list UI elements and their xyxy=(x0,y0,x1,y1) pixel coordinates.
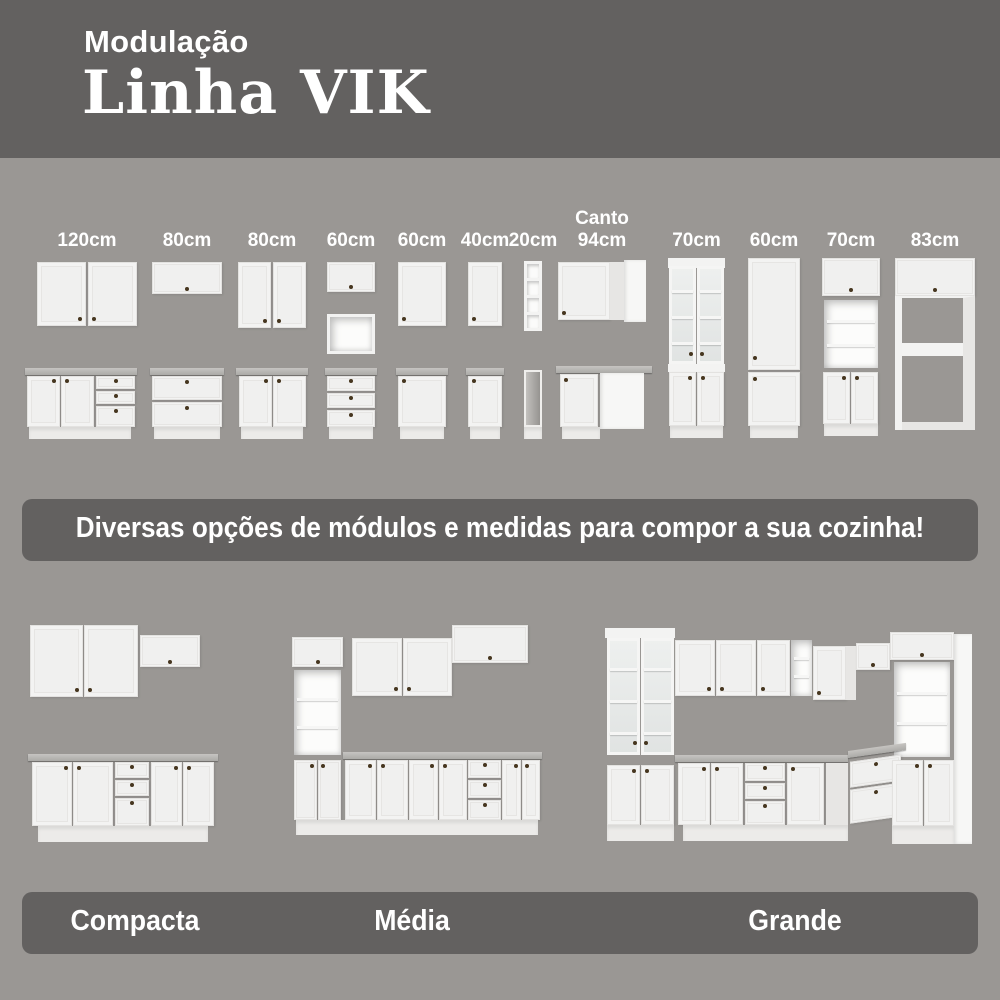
knob xyxy=(483,763,487,767)
cabinet-panel xyxy=(846,646,856,700)
shelf-line xyxy=(644,700,671,703)
cabinet-graphic xyxy=(524,252,542,452)
cabinet-door xyxy=(452,625,528,663)
knob xyxy=(842,376,846,380)
cabinet-graphic xyxy=(238,252,306,452)
cabinet-door xyxy=(398,376,446,427)
cabinet-door xyxy=(32,762,72,826)
knob xyxy=(644,741,648,745)
knob xyxy=(65,379,69,383)
cabinet-door xyxy=(607,765,640,825)
shelf-line xyxy=(644,732,671,735)
cabinet-door xyxy=(61,376,94,427)
knob xyxy=(707,687,711,691)
knob xyxy=(430,764,434,768)
knob xyxy=(525,764,529,768)
countertop xyxy=(466,368,504,375)
cabinet-door xyxy=(468,800,501,820)
shelf-cell xyxy=(527,281,539,295)
glass-door xyxy=(697,266,724,364)
cabinet-door xyxy=(895,258,975,296)
cabinet-panel xyxy=(826,763,848,825)
cabinet-door xyxy=(239,376,272,427)
knob xyxy=(88,688,92,692)
cabinet-door xyxy=(294,760,317,820)
knob xyxy=(168,660,172,664)
shelf-line xyxy=(610,732,637,735)
cabinet-panel xyxy=(668,364,725,372)
cabinet-door xyxy=(377,760,408,820)
knob xyxy=(114,394,118,398)
knob xyxy=(264,379,268,383)
cabinet-door xyxy=(96,406,135,427)
legend-media: Média xyxy=(374,905,450,938)
plinth xyxy=(241,427,303,439)
knob xyxy=(472,379,476,383)
knob xyxy=(514,764,518,768)
cabinet-graphic xyxy=(558,252,646,452)
shelf-line xyxy=(297,698,338,701)
cabinet-door xyxy=(502,760,521,820)
countertop xyxy=(325,368,377,375)
kitchen-grande xyxy=(598,598,978,860)
cabinet-panel xyxy=(902,343,963,356)
cabinet-door xyxy=(84,625,138,697)
knob xyxy=(64,766,68,770)
knob xyxy=(52,379,56,383)
countertop xyxy=(28,754,218,761)
glass-door xyxy=(607,638,640,755)
cabinet-door xyxy=(73,762,113,826)
knob xyxy=(645,769,649,773)
knob xyxy=(928,764,932,768)
cabinet-door xyxy=(152,376,222,400)
knob xyxy=(381,764,385,768)
knob xyxy=(753,377,757,381)
cabinet-door xyxy=(96,391,135,404)
knob xyxy=(310,764,314,768)
page-title: Linha VIK xyxy=(82,58,430,128)
cabinet-door xyxy=(409,760,438,820)
knob xyxy=(702,767,706,771)
knob xyxy=(277,379,281,383)
cabinet-door xyxy=(748,258,800,370)
module-size-label: 83cm xyxy=(861,210,1000,252)
countertop xyxy=(236,368,308,375)
legend-compacta: Compacta xyxy=(71,905,200,938)
cabinet-door xyxy=(468,376,502,427)
knob xyxy=(349,285,353,289)
cabinet-graphic xyxy=(152,252,222,452)
knob xyxy=(472,317,476,321)
knob xyxy=(933,288,937,292)
shelf-line xyxy=(827,320,875,323)
knob xyxy=(753,356,757,360)
shelf-line xyxy=(297,726,338,729)
shelf-line xyxy=(672,316,693,319)
knob xyxy=(277,319,281,323)
knob xyxy=(402,317,406,321)
header-band: Modulação Linha VIK xyxy=(0,0,1000,158)
cabinet-door xyxy=(745,801,785,825)
cabinet-panel xyxy=(524,261,542,331)
knob xyxy=(871,663,875,667)
cabinet-door xyxy=(711,763,743,825)
cabinet-door xyxy=(151,762,182,826)
open-shelf xyxy=(294,670,341,755)
knob xyxy=(763,786,767,790)
knob xyxy=(761,687,765,691)
knob xyxy=(763,804,767,808)
knob xyxy=(368,764,372,768)
knob xyxy=(874,762,878,767)
cabinet-door xyxy=(813,646,846,700)
plinth xyxy=(400,427,444,439)
cabinet-door xyxy=(716,640,756,696)
shelf-line xyxy=(827,344,875,347)
open-niche xyxy=(524,370,542,427)
knob xyxy=(443,764,447,768)
plinth xyxy=(562,427,600,439)
countertop xyxy=(343,752,542,759)
knob xyxy=(701,376,705,380)
shelf-line xyxy=(897,722,947,725)
knob xyxy=(483,803,487,807)
shelf-cell xyxy=(527,315,539,328)
countertop xyxy=(25,368,137,375)
cabinet-door xyxy=(327,262,375,292)
knob xyxy=(263,319,267,323)
shelf-cell xyxy=(527,298,539,312)
cabinet-door xyxy=(558,262,610,320)
cabinet-door xyxy=(183,762,214,826)
shelf-line xyxy=(794,675,809,678)
cabinet-door xyxy=(152,262,222,294)
shelf-line xyxy=(610,700,637,703)
knob xyxy=(763,766,767,770)
cabinet-door xyxy=(669,372,696,426)
kitchen-media xyxy=(290,600,552,855)
knob xyxy=(562,311,566,315)
cabinet-door xyxy=(115,798,149,826)
cabinet-door xyxy=(522,760,540,820)
knob xyxy=(185,380,189,384)
countertop xyxy=(150,368,224,375)
knob xyxy=(114,409,118,413)
plinth xyxy=(824,424,878,436)
knob xyxy=(633,741,637,745)
knob xyxy=(874,790,878,795)
glass-door xyxy=(641,638,674,755)
cabinet-door xyxy=(345,760,376,820)
cabinet-graphic xyxy=(398,252,446,452)
knob xyxy=(688,376,692,380)
knob xyxy=(75,688,79,692)
cabinet-door xyxy=(439,760,467,820)
knob xyxy=(394,687,398,691)
knob xyxy=(817,691,821,695)
knob xyxy=(187,766,191,770)
knob xyxy=(488,656,492,660)
shelf-line xyxy=(794,657,809,660)
knob xyxy=(185,287,189,291)
legend-band: Compacta Média Grande xyxy=(22,892,978,954)
knob xyxy=(564,378,568,382)
cabinet-door xyxy=(273,376,306,427)
cabinet-door xyxy=(748,372,800,426)
shelf-line xyxy=(700,290,721,293)
cabinet-door xyxy=(327,376,375,391)
plinth xyxy=(329,427,373,439)
cabinet-door xyxy=(30,625,83,697)
plinth xyxy=(296,820,538,835)
cabinet-door xyxy=(468,760,501,778)
plinth xyxy=(607,825,674,841)
plinth xyxy=(892,826,954,844)
cabinet-door xyxy=(140,635,200,667)
knob xyxy=(920,653,924,657)
knob xyxy=(349,396,353,400)
plinth xyxy=(750,426,798,438)
cabinet-door xyxy=(327,410,375,427)
knob xyxy=(77,766,81,770)
cabinet-door xyxy=(890,632,954,660)
knob xyxy=(78,317,82,321)
cabinet-door xyxy=(822,258,880,296)
knob xyxy=(114,379,118,383)
shelf-line xyxy=(610,668,637,671)
cabinet-door xyxy=(678,763,710,825)
glass-door xyxy=(669,266,696,364)
cabinet-door xyxy=(892,760,923,826)
cabinet-panel xyxy=(624,260,646,322)
cabinet-graphic xyxy=(468,252,502,452)
shelf-line xyxy=(644,668,671,671)
countertop xyxy=(675,755,848,762)
cabinet-door xyxy=(115,780,149,796)
kitchen-compacta xyxy=(28,600,223,855)
cabinet-door xyxy=(37,262,86,326)
countertop xyxy=(556,366,652,373)
plinth xyxy=(38,826,208,842)
knob xyxy=(174,766,178,770)
shelf-line xyxy=(700,342,721,345)
cabinet-door xyxy=(327,393,375,408)
open-shelf xyxy=(791,640,812,696)
knob xyxy=(92,317,96,321)
cabinet-graphic xyxy=(822,252,880,452)
plinth xyxy=(683,825,848,841)
cabinet-door xyxy=(238,262,271,328)
knob xyxy=(407,687,411,691)
cabinet-door xyxy=(856,643,890,670)
cabinet-door xyxy=(641,765,674,825)
cabinet-door xyxy=(468,780,501,798)
cabinet-door xyxy=(318,760,341,820)
knob xyxy=(700,352,704,356)
knob xyxy=(791,767,795,771)
knob xyxy=(185,406,189,410)
shelf-line xyxy=(700,316,721,319)
knob xyxy=(849,288,853,292)
knob xyxy=(349,379,353,383)
header-eyebrow: Modulação xyxy=(84,24,249,60)
cabinet-panel xyxy=(610,262,624,320)
cabinet-door xyxy=(352,638,402,696)
cabinet-door xyxy=(851,372,878,424)
cabinet-door xyxy=(403,638,452,696)
cabinet-graphic xyxy=(748,252,800,452)
knob xyxy=(632,769,636,773)
cabinet-door xyxy=(292,637,343,667)
cabinet-door xyxy=(27,376,60,427)
countertop xyxy=(396,368,448,375)
knob xyxy=(855,376,859,380)
knob xyxy=(316,660,320,664)
cabinet-panel xyxy=(954,634,972,844)
knob xyxy=(715,767,719,771)
shelf-line xyxy=(897,692,947,695)
legend-grande: Grande xyxy=(748,905,841,938)
knob xyxy=(321,764,325,768)
banner-text: Diversas opções de módulos e medidas par… xyxy=(70,512,930,545)
knob xyxy=(130,765,134,769)
cabinet-door xyxy=(787,763,824,825)
cabinet-graphic xyxy=(37,252,137,452)
cabinet-graphic xyxy=(668,252,725,452)
plinth xyxy=(29,427,131,439)
plinth xyxy=(524,427,542,439)
knob xyxy=(402,379,406,383)
cabinet-door xyxy=(675,640,715,696)
knob xyxy=(130,783,134,787)
open-shelf xyxy=(824,300,878,368)
knob xyxy=(689,352,693,356)
knob xyxy=(349,413,353,417)
cabinet-door xyxy=(398,262,446,326)
banner: Diversas opções de módulos e medidas par… xyxy=(22,499,978,561)
cabinet-panel xyxy=(902,422,963,430)
cabinet-door xyxy=(115,762,149,778)
cabinet-door xyxy=(468,262,502,326)
cabinet-graphic xyxy=(327,252,375,452)
open-shelf xyxy=(327,314,375,354)
cabinet-door xyxy=(745,763,785,781)
cabinet-door xyxy=(697,372,724,426)
knob xyxy=(915,764,919,768)
open-tower-frame xyxy=(895,296,975,430)
plinth xyxy=(470,427,500,439)
shelf-line xyxy=(672,342,693,345)
knob xyxy=(720,687,724,691)
cabinet-door xyxy=(745,783,785,799)
cabinet-door xyxy=(152,402,222,427)
knob xyxy=(483,783,487,787)
cabinet-panel xyxy=(605,628,675,638)
knob xyxy=(130,801,134,805)
cabinet-door xyxy=(96,376,135,389)
plinth xyxy=(154,427,220,439)
cabinet-panel xyxy=(600,373,644,429)
cabinet-door xyxy=(560,374,598,427)
cabinet-door xyxy=(924,760,954,826)
plinth xyxy=(670,426,723,438)
shelf-line xyxy=(672,290,693,293)
cabinet-graphic xyxy=(895,252,975,452)
cabinet-door xyxy=(757,640,790,696)
cabinet-door xyxy=(823,372,850,424)
cabinet-door xyxy=(88,262,137,326)
promo-image: Modulação Linha VIK 120cm 80cm xyxy=(0,0,1000,1000)
shelf-cell xyxy=(527,264,539,278)
cabinet-door xyxy=(273,262,306,328)
